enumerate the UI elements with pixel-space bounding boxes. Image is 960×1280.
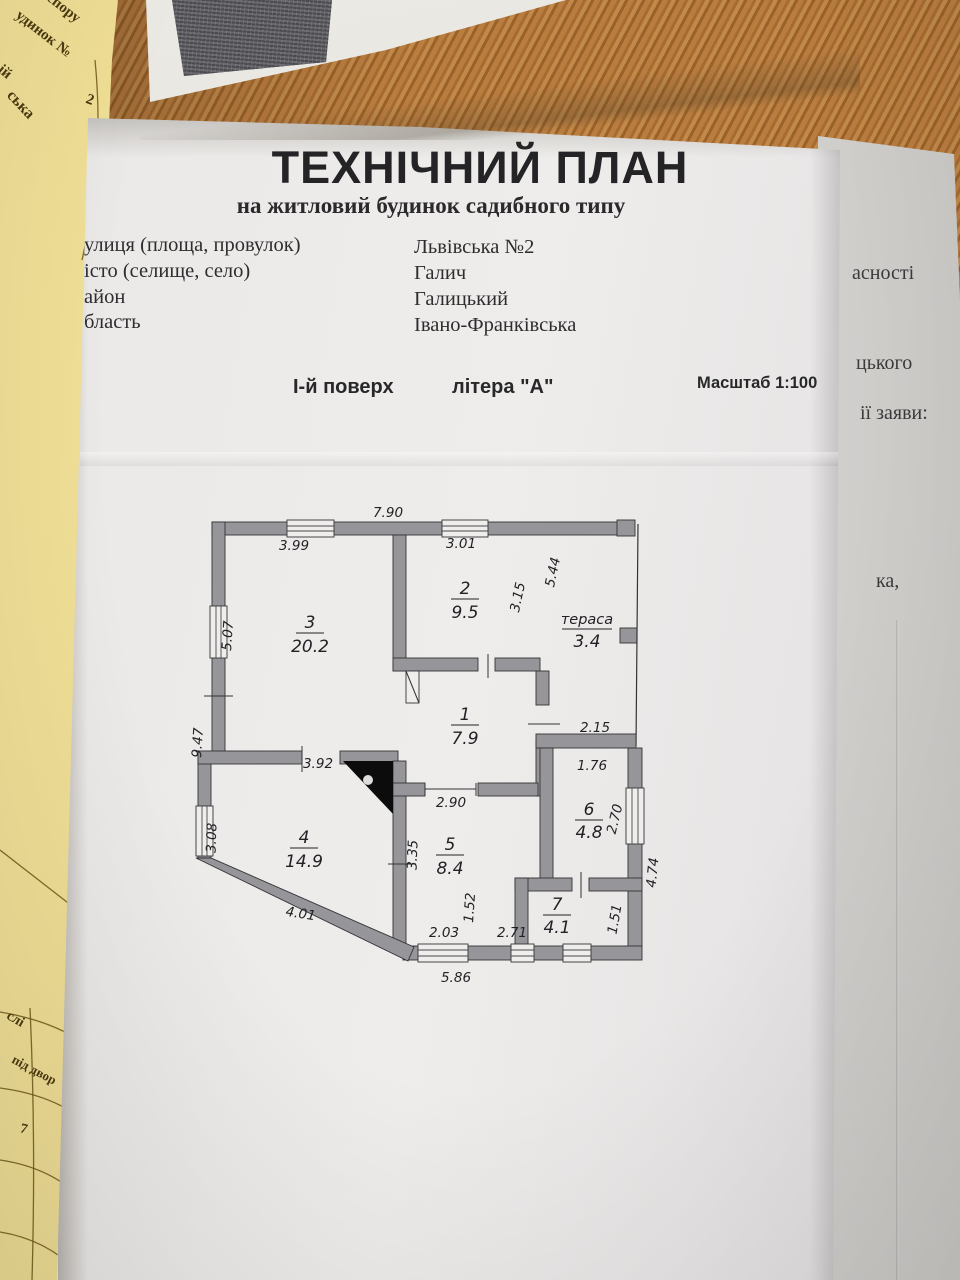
room-5-area: 8.4: [436, 859, 463, 879]
room-1-number: 1: [460, 705, 471, 725]
room-1-area: 7.9: [451, 729, 478, 749]
dim-terrace-left: 5.44: [542, 556, 564, 589]
dim-room3-top: 3.99: [279, 538, 309, 554]
dim-right-total: 4.74: [643, 857, 662, 889]
right-page-fragment: ка,: [876, 570, 899, 593]
right-page-fragment: асності: [852, 262, 914, 285]
right-page-fragment: ії заяви:: [860, 402, 928, 425]
document-title: ТЕХНІЧНИЙ ПЛАН: [230, 142, 730, 194]
room-4-area: 14.9: [285, 852, 323, 872]
dim-room4-top: 3.92: [303, 756, 333, 772]
address-label-region: бласть: [84, 311, 141, 334]
terrace-area: 3.4: [573, 632, 600, 652]
dim-bottom-total: 5.86: [441, 970, 471, 986]
room-4-number: 4: [299, 828, 310, 848]
page-crease: [896, 620, 899, 1280]
technical-plan-page: ТЕХНІЧНИЙ ПЛАН на житловий будинок садиб…: [0, 0, 960, 1280]
door-symbol: [406, 671, 419, 703]
room-2-area: 9.5: [451, 603, 478, 623]
dim-room2-right: 3.15: [507, 581, 529, 614]
dim-room1-bottom: 2.90: [436, 795, 466, 811]
dim-room4-window: 3.08: [203, 823, 220, 854]
address-value-district: Галицький: [414, 288, 508, 311]
dim-top-width: 7.90: [373, 506, 403, 521]
right-page-fragment: цького: [856, 352, 912, 375]
address-value-region: Івано-Франківська: [414, 314, 576, 337]
address-value-city: Галич: [414, 262, 466, 285]
dim-room6-right: 2.70: [604, 803, 627, 836]
dim-room7-right: 1.51: [605, 903, 626, 935]
room-7-area: 4.1: [543, 918, 570, 938]
walls: [196, 520, 642, 961]
terrace-label: тераса: [561, 612, 613, 628]
dim-room2-top: 3.01: [446, 536, 476, 552]
room-3-area: 20.2: [291, 637, 329, 657]
room-6-number: 6: [584, 800, 595, 820]
dim-left-total: 9.47: [189, 727, 207, 759]
stairs-symbol: [343, 761, 393, 814]
address-label-city: істо (селище, село): [84, 260, 250, 283]
room-3-number: 3: [305, 613, 316, 633]
page-crease: [80, 452, 840, 466]
dim-room3-left: 5.07: [219, 620, 237, 652]
dim-room4-diagonal: 4.01: [285, 904, 317, 925]
dim-room6-top: 1.76: [577, 758, 607, 774]
room-7-number: 7: [552, 895, 563, 915]
dim-bottom-w2: 2.71: [497, 925, 527, 941]
scale-label: Масштаб 1:100: [697, 374, 817, 393]
address-label-street: улиця (площа, провулок): [84, 234, 301, 257]
dim-hall-width: 2.15: [580, 720, 610, 736]
floor-plan-svg: 3 20.2 2 9.5 тераса 3.4 1 7.9 6 4.8 4 14…: [188, 506, 668, 998]
floor-label: І-й поверх: [293, 376, 394, 399]
room-5-number: 5: [445, 835, 456, 855]
dim-room5-passage: 1.52: [461, 892, 479, 923]
room-2-number: 2: [460, 579, 471, 599]
address-label-district: айон: [84, 286, 125, 309]
letter-label: літера "А": [452, 376, 553, 399]
dim-bottom-w1: 2.03: [429, 925, 459, 941]
address-value-street: Львівська №2: [414, 236, 534, 259]
room-6-area: 4.8: [575, 823, 602, 843]
dim-room5-left: 3.35: [404, 840, 421, 871]
document-subtitle: на житловий будинок садибного типу: [206, 193, 656, 219]
photo-of-technical-plan: асності цького ії заяви: ка, спору удино…: [0, 0, 960, 1280]
